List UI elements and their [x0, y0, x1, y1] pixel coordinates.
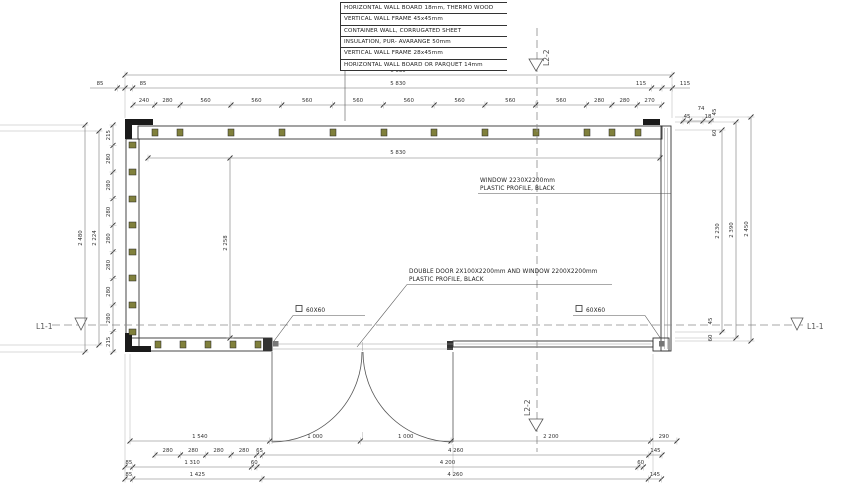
dimension-label: 60 [708, 334, 714, 341]
dimension-label: 74 [698, 106, 705, 112]
dimension-label: 280 [213, 448, 224, 454]
dimension-label: 45 [708, 318, 714, 325]
stud [279, 129, 285, 136]
door-swing-left [272, 352, 362, 442]
dimension-label: 280 [106, 153, 112, 164]
dimension-label: 280 [106, 206, 112, 217]
dimension-label: 215 [106, 337, 112, 347]
dimension-label: 270 [644, 98, 655, 104]
stud [129, 222, 136, 228]
dimension-label: 560 [454, 98, 465, 104]
stud [584, 129, 590, 136]
dimension-label: 4 260 [448, 448, 464, 454]
dimensions: 6 03085855 83011511524028056056056056056… [0, 68, 755, 483]
dimension-label: 145 [650, 448, 660, 454]
stud [230, 341, 236, 348]
legend-row: VERTICAL WALL FRAME 45x45mm [341, 14, 507, 25]
stud [177, 129, 183, 136]
stud [255, 341, 261, 348]
dimension-label: 2 200 [543, 434, 559, 440]
dimension-label: 4 260 [447, 472, 463, 478]
wall-bottom-left [130, 338, 272, 351]
double-door [272, 341, 665, 442]
dimension-label: 115 [680, 81, 690, 87]
dimension-label: 115 [636, 81, 646, 87]
section-marker-l1-1-left: L1-1 [36, 322, 53, 331]
dimension-label: 1 425 [190, 472, 205, 478]
stud [129, 196, 136, 202]
window-label: WINDOW 2230X2200mm [480, 178, 555, 184]
dimension-label: 560 [404, 98, 415, 104]
dimension-label: 1 310 [184, 460, 200, 466]
stud [431, 129, 437, 136]
dimension-label: 560 [505, 98, 516, 104]
dimension-label: 280 [163, 448, 174, 454]
floor-plan-drawing: L1-1L1-1L2-2L2-26 03085855 8301151152402… [0, 0, 859, 483]
dimension-label: 1 540 [192, 434, 208, 440]
dimension-label: 65 [256, 448, 263, 454]
stud [129, 275, 136, 281]
section-marker-l2-2-bottom: L2-2 [523, 399, 532, 416]
post-60x60-right [659, 341, 665, 347]
stud [129, 142, 136, 148]
dimension-label: 560 [353, 98, 364, 104]
legend-row: INSULATION, PUR- AVARANGE 50mm [341, 37, 507, 48]
dimension-label: 85 [125, 472, 132, 478]
dimension-label: 2 450 [744, 221, 750, 237]
stud [129, 169, 136, 175]
stud [533, 129, 539, 136]
dimension-label: 1 000 [398, 434, 414, 440]
stud [381, 129, 387, 136]
dimension-label: 60 [251, 460, 258, 466]
legend-row: VERTICAL WALL FRAME 28x45mm [341, 48, 507, 59]
legend-row: HORIZONTAL WALL BOARD OR PARQUET 14mm [341, 60, 507, 71]
dimension-label: 280 [162, 98, 173, 104]
legend: HORIZONTAL WALL BOARD 18mm, THERMO WOODV… [340, 2, 507, 71]
dimension-label: 85 [140, 81, 147, 87]
dimension-label: 280 [106, 180, 112, 191]
dimension-label: 60 [712, 129, 718, 136]
legend-row: HORIZONTAL WALL BOARD 18mm, THERMO WOOD [341, 3, 507, 14]
dimension-label: 280 [106, 233, 112, 244]
section-lines: L1-1L1-1L2-2L2-2 [36, 28, 824, 452]
stud [609, 129, 615, 136]
stud [330, 129, 336, 136]
dimension-label: 280 [594, 98, 605, 104]
window-label: PLASTIC PROFILE, BLACK [480, 186, 555, 192]
stud [180, 341, 186, 348]
dimension-label: 560 [556, 98, 567, 104]
dimension-label: 560 [302, 98, 313, 104]
door-swing-right [363, 352, 453, 442]
wall-right-window [661, 126, 671, 351]
stud [152, 129, 158, 136]
stud [129, 302, 136, 308]
dimension-label: 280 [106, 286, 112, 297]
dimension-label: 5 830 [390, 150, 406, 156]
dimension-label: 2 390 [729, 222, 735, 238]
dimension-label: 280 [106, 313, 112, 324]
dimension-label: 60 [637, 460, 644, 466]
section-marker-l2-2-top: L2-2 [542, 49, 551, 66]
dimension-label: 2 480 [78, 230, 84, 246]
stud [155, 341, 161, 348]
dimension-label: 2 258 [223, 235, 229, 251]
floor-plan-page: L1-1L1-1L2-2L2-26 03085855 8301151152402… [0, 0, 859, 483]
dimension-label: 560 [200, 98, 211, 104]
stud [635, 129, 641, 136]
stud [205, 341, 211, 348]
dimension-label: 2 224 [92, 230, 98, 246]
post-60x60-left [273, 341, 279, 347]
square-symbol [296, 306, 302, 312]
stud [129, 249, 136, 255]
legend-row: CONTAINER WALL, CORRUGATED SHEET [341, 26, 507, 37]
stud [228, 129, 234, 136]
post-label-right: 60X60 [586, 308, 605, 314]
wall-studs [129, 129, 641, 348]
dimension-label: 145 [650, 472, 660, 478]
dimension-label: 4 200 [440, 460, 456, 466]
dimension-label: 240 [139, 98, 150, 104]
dimension-label: 280 [106, 259, 112, 270]
door-label: DOUBLE DOOR 2X100X2200mm AND WINDOW 2200… [409, 269, 598, 275]
dimension-label: 5 830 [390, 81, 406, 87]
dimension-label: 280 [188, 448, 199, 454]
dimension-label: 560 [251, 98, 262, 104]
dimension-label: 290 [659, 434, 670, 440]
wall-top [138, 126, 662, 139]
square-symbol [576, 306, 582, 312]
dimension-label: 215 [106, 130, 112, 140]
stud [129, 329, 136, 335]
dimension-label: 2 230 [715, 223, 721, 239]
annotations: WINDOW 2230X2200mmPLASTIC PROFILE, BLACK… [274, 64, 671, 347]
dimension-label: 85 [97, 81, 104, 87]
door-label: PLASTIC PROFILE, BLACK [409, 277, 484, 283]
dimension-label: 45 [712, 109, 718, 116]
dimension-label: 1 000 [307, 434, 323, 440]
stud [482, 129, 488, 136]
dimension-label: 280 [239, 448, 250, 454]
dimension-label: 280 [619, 98, 630, 104]
post-label-left: 60X60 [306, 308, 325, 314]
section-marker-l1-1-right: L1-1 [807, 322, 824, 331]
dimension-label: 85 [125, 460, 132, 466]
